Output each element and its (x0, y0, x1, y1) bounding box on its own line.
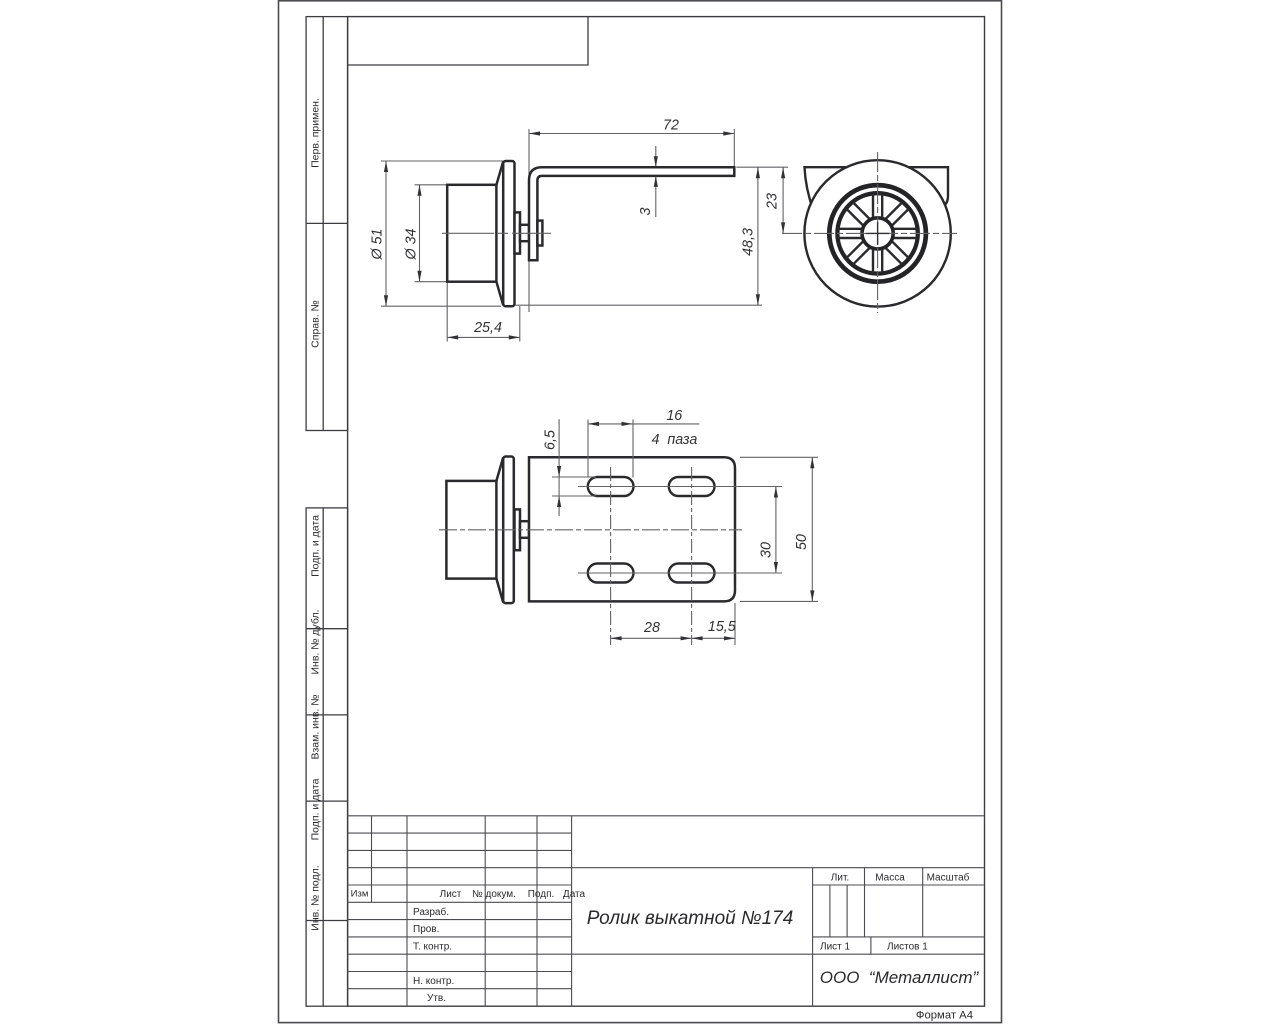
svg-text:50: 50 (794, 534, 810, 550)
svg-text:Масса: Масса (875, 873, 905, 884)
svg-text:Лист: Лист (440, 889, 462, 900)
svg-text:3: 3 (638, 207, 654, 215)
svg-text:Дата: Дата (563, 889, 586, 900)
svg-text:48,3: 48,3 (741, 228, 757, 256)
svg-text:Перв. примен.: Перв. примен. (309, 98, 321, 168)
svg-text:Утв.: Утв. (427, 993, 446, 1004)
svg-text:15,5: 15,5 (708, 619, 736, 635)
svg-text:16: 16 (666, 408, 682, 424)
svg-text:Формат А4: Формат А4 (916, 1010, 973, 1022)
svg-text:Подп.: Подп. (528, 889, 555, 900)
svg-text:4 паза: 4 паза (651, 432, 697, 448)
svg-text:Подп. и дата: Подп. и дата (309, 778, 321, 840)
svg-text:Лит.: Лит. (831, 873, 849, 884)
svg-text:Н. контр.: Н. контр. (413, 976, 454, 987)
svg-text:Подп. и дата: Подп. и дата (309, 515, 321, 577)
svg-text:Инв. № подл.: Инв. № подл. (309, 865, 321, 930)
svg-text:6,5: 6,5 (543, 430, 559, 450)
svg-text:30: 30 (758, 542, 774, 558)
svg-text:Т. контр.: Т. контр. (413, 942, 452, 953)
svg-text:28: 28 (643, 620, 660, 636)
svg-text:72: 72 (663, 118, 679, 134)
svg-text:Инв. № дубл.: Инв. № дубл. (309, 609, 321, 674)
svg-text:Ø 51: Ø 51 (370, 229, 386, 261)
svg-text:Ролик выкатной №174: Ролик выкатной №174 (587, 908, 794, 929)
svg-text:№ докум.: № докум. (472, 889, 516, 900)
svg-text:ООО “Металлист”: ООО “Металлист” (820, 968, 980, 987)
svg-text:Пров.: Пров. (413, 924, 439, 935)
svg-text:Справ. №: Справ. № (309, 300, 321, 348)
svg-text:Листов 1: Листов 1 (887, 942, 928, 953)
svg-text:Взам. инв. №: Взам. инв. № (309, 694, 321, 759)
svg-text:Масштаб: Масштаб (927, 872, 970, 884)
svg-text:Лист 1: Лист 1 (820, 942, 851, 953)
svg-text:25,4: 25,4 (473, 320, 502, 336)
svg-text:Ø 34: Ø 34 (404, 228, 420, 260)
svg-text:Разраб.: Разраб. (413, 906, 449, 918)
svg-text:23: 23 (765, 193, 781, 210)
svg-text:Изм: Изм (351, 889, 369, 900)
